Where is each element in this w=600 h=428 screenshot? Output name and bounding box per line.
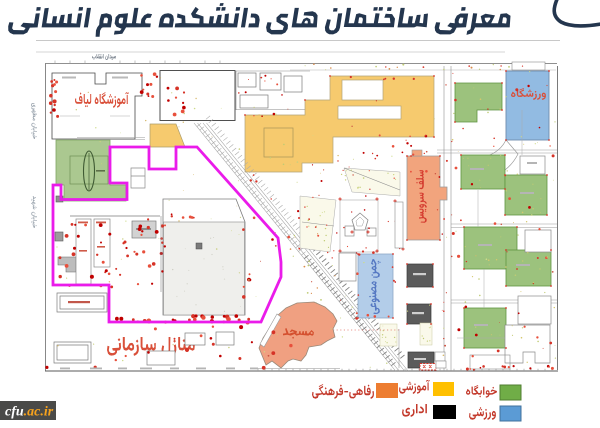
svg-text:cfu.ac.ir: cfu.ac.ir <box>5 405 54 420</box>
